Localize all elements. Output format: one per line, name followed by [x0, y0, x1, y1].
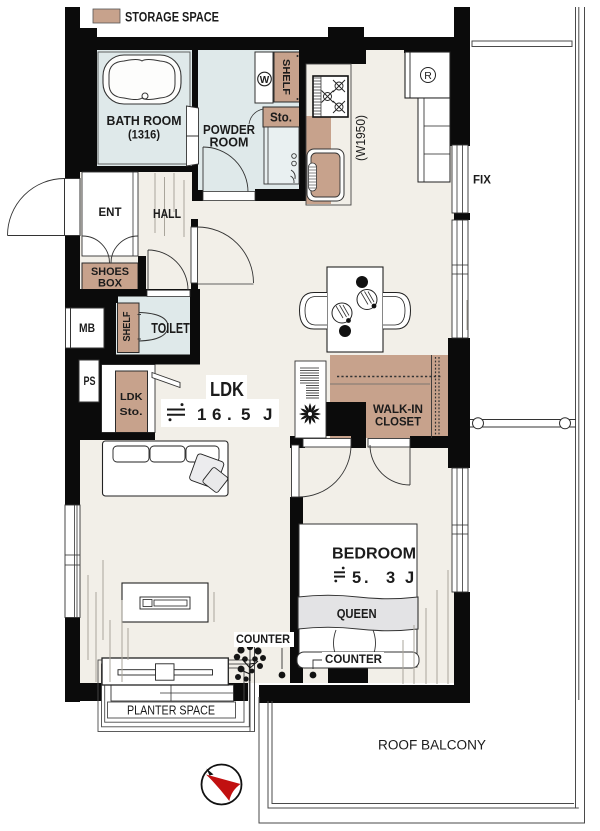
svg-text:J: J: [263, 405, 272, 424]
svg-text:QUEEN: QUEEN: [337, 606, 377, 621]
svg-text:ROOM: ROOM: [210, 136, 249, 150]
svg-text:.: .: [364, 569, 369, 587]
svg-text:SHELF: SHELF: [121, 311, 133, 342]
svg-text:PLANTER SPACE: PLANTER SPACE: [127, 703, 215, 718]
svg-text:STORAGE SPACE: STORAGE SPACE: [125, 10, 219, 25]
svg-text:5: 5: [241, 405, 250, 424]
svg-text:5: 5: [352, 569, 361, 587]
svg-text:(1316): (1316): [128, 128, 160, 142]
svg-text:CLOSET: CLOSET: [375, 417, 421, 429]
svg-text:ROOF BALCONY: ROOF BALCONY: [378, 738, 486, 753]
svg-text:TOILET: TOILET: [151, 320, 190, 337]
svg-text:COUNTER: COUNTER: [236, 634, 291, 646]
svg-text:Sto.: Sto.: [120, 406, 143, 418]
svg-text:BEDROOM: BEDROOM: [332, 546, 416, 563]
svg-text:COUNTER: COUNTER: [325, 654, 383, 666]
svg-text:LDK: LDK: [120, 391, 143, 403]
svg-text:J: J: [405, 569, 414, 587]
svg-text:SHOES: SHOES: [91, 266, 129, 278]
svg-text:W: W: [260, 75, 270, 86]
svg-text:MB: MB: [79, 321, 95, 335]
svg-text:6: 6: [212, 405, 221, 424]
svg-text:.: .: [227, 405, 232, 424]
svg-text:WALK-IN: WALK-IN: [373, 404, 423, 416]
svg-text:LDK: LDK: [210, 378, 244, 401]
svg-text:SHELF: SHELF: [280, 59, 292, 96]
svg-text:ENT: ENT: [99, 207, 122, 219]
svg-text:R: R: [424, 70, 432, 82]
svg-text:HALL: HALL: [153, 207, 181, 221]
svg-text:(W1950): (W1950): [354, 115, 368, 161]
svg-text:BATH ROOM: BATH ROOM: [107, 114, 182, 128]
svg-text:PS: PS: [84, 374, 96, 388]
svg-text:Sto.: Sto.: [270, 111, 292, 125]
svg-text:FIX: FIX: [473, 175, 491, 187]
svg-text:3: 3: [386, 569, 395, 587]
svg-text:1: 1: [197, 405, 206, 424]
svg-text:BOX: BOX: [98, 278, 123, 290]
